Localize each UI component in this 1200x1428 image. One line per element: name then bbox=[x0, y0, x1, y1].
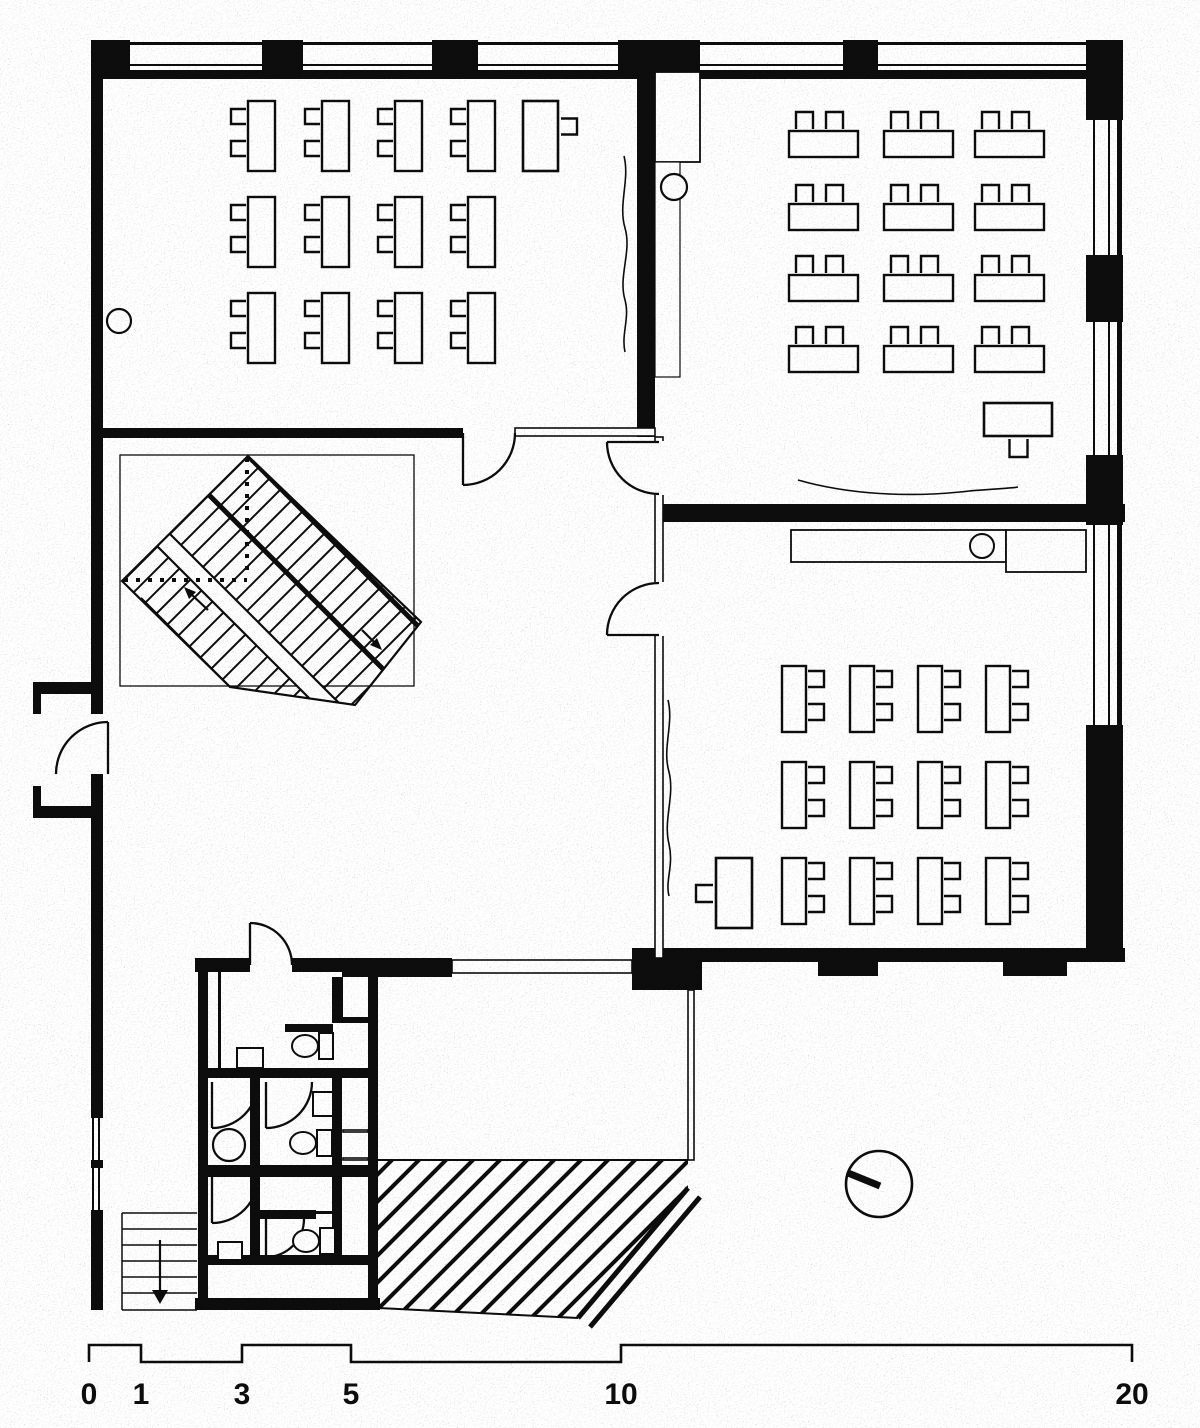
scan-noise-texture bbox=[0, 0, 1200, 1428]
floor-plan-sheet: 0 1 3 5 10 20 bbox=[0, 0, 1200, 1428]
floor-plan-drawing: 0 1 3 5 10 20 bbox=[0, 0, 1200, 1428]
